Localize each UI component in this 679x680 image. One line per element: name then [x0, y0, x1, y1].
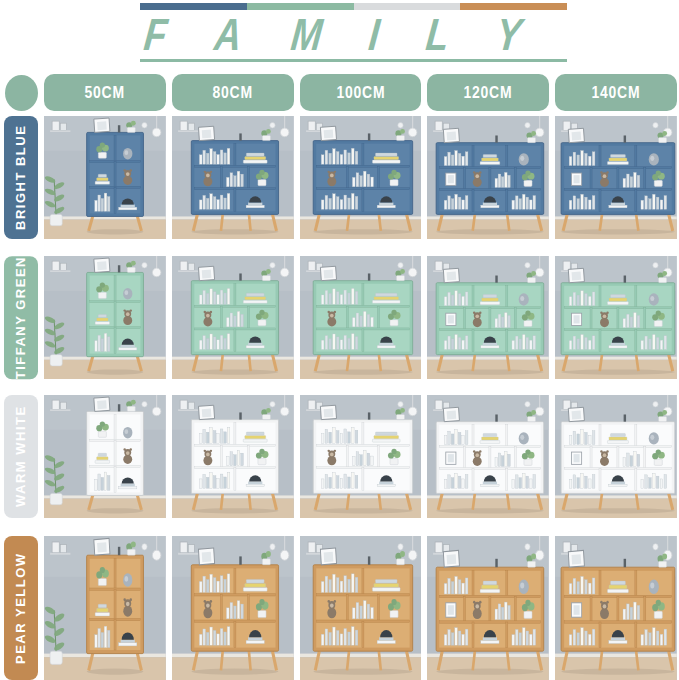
bookshelf-graphic: [87, 555, 144, 653]
photo-pear-yellow-120cm: [427, 536, 549, 680]
row-label-bright-blue: BRIGHT BLUE: [4, 116, 38, 239]
title-underline: [140, 59, 567, 62]
family-title: F A M I L Y: [142, 11, 524, 59]
product-scene: [172, 536, 294, 680]
product-scene: [172, 116, 294, 239]
photo-warm-white-140cm: [555, 395, 677, 518]
bookshelf-graphic: [437, 283, 545, 355]
size-pill-label: 80CM: [212, 83, 252, 103]
title-letter: M: [289, 11, 325, 58]
title-letter: F: [142, 11, 169, 58]
row-label-warm-white: WARM WHITE: [4, 395, 38, 518]
product-scene: [300, 395, 422, 518]
bookshelf-graphic: [87, 132, 144, 216]
bookshelf-graphic: [87, 272, 144, 356]
size-pill-140cm: 140CM: [555, 74, 677, 111]
bookshelf-graphic: [87, 411, 144, 495]
title-letter: I: [367, 11, 382, 58]
bookshelf-graphic: [191, 420, 278, 494]
row-label-text: BRIGHT BLUE: [13, 125, 29, 230]
product-scene: [172, 256, 294, 379]
size-pill-label: 140CM: [592, 83, 641, 103]
photo-bright-blue-140cm: [555, 116, 677, 239]
bookshelf-graphic: [191, 565, 278, 651]
photo-bright-blue-120cm: [427, 116, 549, 239]
size-pill-50cm: 50CM: [44, 74, 166, 111]
bookshelf-graphic: [437, 422, 545, 494]
row-label-text: TIFFANY GREEN: [13, 256, 29, 379]
bookshelf-graphic: [313, 420, 412, 494]
photo-warm-white-50cm: [44, 395, 166, 518]
size-pill-100cm: 100CM: [300, 74, 422, 111]
product-scene: [555, 395, 677, 518]
title-letter: L: [424, 11, 451, 58]
size-pill-120cm: 120CM: [427, 74, 549, 111]
product-scene: [555, 256, 677, 379]
bookshelf-graphic: [313, 281, 412, 355]
row-warm-white: WARM WHITE: [4, 395, 677, 518]
bookshelf-graphic: [561, 283, 675, 355]
size-pill-label: 120CM: [464, 83, 513, 103]
bookshelf-graphic: [437, 567, 545, 651]
title-letter: Y: [494, 11, 524, 58]
bookshelf-graphic: [191, 281, 278, 355]
photo-tiffany-green-140cm: [555, 256, 677, 379]
photo-pear-yellow-50cm: [44, 536, 166, 680]
photo-tiffany-green-120cm: [427, 256, 549, 379]
product-scene: [44, 536, 166, 680]
photo-bright-blue-80cm: [172, 116, 294, 239]
product-scene: [427, 536, 549, 680]
product-scene: [44, 116, 166, 239]
bookshelf-graphic: [561, 422, 675, 494]
product-scene: [300, 536, 422, 680]
size-header-row: 50CM 80CM 100CM 120CM 140CM: [4, 74, 677, 111]
corner-dot: [5, 75, 38, 111]
photo-warm-white-120cm: [427, 395, 549, 518]
photo-pear-yellow-140cm: [555, 536, 677, 680]
product-scene: [555, 116, 677, 239]
photo-bright-blue-50cm: [44, 116, 166, 239]
size-pill-label: 100CM: [336, 83, 385, 103]
product-scene: [172, 395, 294, 518]
photo-warm-white-80cm: [172, 395, 294, 518]
product-scene: [300, 116, 422, 239]
row-bright-blue: BRIGHT BLUE: [4, 116, 677, 239]
bookshelf-graphic: [191, 141, 278, 215]
bookshelf-graphic: [561, 567, 675, 651]
photo-pear-yellow-100cm: [300, 536, 422, 680]
bookshelf-graphic: [561, 143, 675, 215]
row-label-pear-yellow: PEAR YELLOW: [4, 536, 38, 680]
photo-bright-blue-100cm: [300, 116, 422, 239]
bookshelf-graphic: [437, 143, 545, 215]
product-scene: [427, 116, 549, 239]
row-tiffany-green: TIFFANY GREEN: [4, 256, 677, 379]
size-pill-80cm: 80CM: [172, 74, 294, 111]
row-pear-yellow: PEAR YELLOW: [4, 536, 677, 680]
photo-pear-yellow-80cm: [172, 536, 294, 680]
bookshelf-graphic: [313, 141, 412, 215]
row-label-text: PEAR YELLOW: [13, 552, 29, 664]
product-scene: [44, 395, 166, 518]
title-letter: A: [213, 11, 245, 58]
photo-tiffany-green-50cm: [44, 256, 166, 379]
photo-tiffany-green-100cm: [300, 256, 422, 379]
bookshelf-graphic: [313, 565, 412, 651]
bookshelf-family-poster: F A M I L Y 50CM 80CM 100CM 120CM 140CM …: [0, 0, 679, 680]
photo-tiffany-green-80cm: [172, 256, 294, 379]
product-scene: [555, 536, 677, 680]
product-scene: [44, 256, 166, 379]
product-scene: [300, 256, 422, 379]
size-pill-label: 50CM: [85, 83, 125, 103]
photo-warm-white-100cm: [300, 395, 422, 518]
row-label-tiffany-green: TIFFANY GREEN: [4, 256, 38, 379]
product-scene: [427, 256, 549, 379]
row-label-text: WARM WHITE: [13, 406, 29, 508]
product-scene: [427, 395, 549, 518]
